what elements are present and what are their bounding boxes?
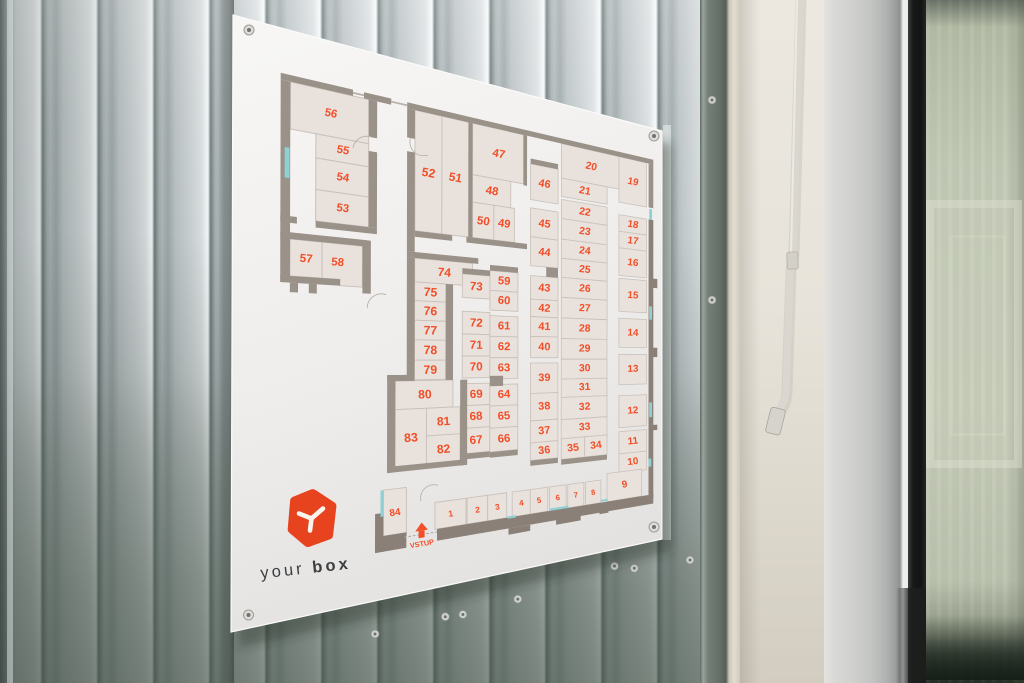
svg-text:40: 40 — [538, 341, 550, 353]
svg-text:14: 14 — [627, 328, 639, 339]
svg-text:72: 72 — [470, 316, 484, 329]
svg-text:51: 51 — [448, 169, 464, 185]
svg-text:55: 55 — [336, 144, 350, 158]
svg-text:83: 83 — [404, 430, 419, 445]
svg-text:25: 25 — [579, 264, 592, 276]
svg-text:39: 39 — [538, 372, 550, 384]
svg-text:60: 60 — [497, 295, 510, 308]
svg-text:41: 41 — [538, 321, 551, 333]
svg-text:64: 64 — [497, 389, 511, 401]
svg-text:47: 47 — [491, 147, 506, 161]
svg-text:32: 32 — [579, 401, 591, 413]
svg-text:10: 10 — [627, 456, 640, 468]
svg-text:63: 63 — [498, 362, 511, 374]
svg-text:37: 37 — [538, 424, 551, 437]
svg-text:18: 18 — [627, 219, 640, 232]
svg-text:27: 27 — [579, 303, 591, 315]
svg-text:66: 66 — [497, 433, 511, 446]
svg-text:58: 58 — [331, 256, 345, 269]
svg-text:50: 50 — [476, 214, 491, 229]
svg-text:48: 48 — [485, 185, 500, 199]
svg-text:36: 36 — [538, 444, 551, 457]
svg-text:53: 53 — [336, 202, 350, 216]
svg-text:65: 65 — [497, 410, 511, 423]
svg-text:24: 24 — [578, 245, 591, 257]
svg-text:17: 17 — [627, 235, 640, 247]
svg-text:35: 35 — [567, 441, 580, 454]
svg-text:34: 34 — [590, 440, 603, 452]
svg-text:46: 46 — [537, 177, 551, 191]
svg-text:68: 68 — [469, 410, 483, 424]
svg-text:62: 62 — [498, 341, 511, 353]
svg-text:43: 43 — [538, 282, 551, 295]
svg-text:42: 42 — [538, 302, 551, 315]
svg-text:74: 74 — [437, 265, 452, 280]
svg-text:33: 33 — [579, 422, 592, 434]
svg-text:13: 13 — [627, 364, 639, 375]
svg-text:79: 79 — [423, 363, 437, 377]
svg-text:76: 76 — [423, 304, 437, 319]
svg-text:75: 75 — [423, 285, 438, 300]
svg-text:67: 67 — [469, 433, 483, 447]
svg-text:44: 44 — [538, 246, 551, 259]
svg-text:49: 49 — [497, 217, 511, 231]
svg-text:78: 78 — [424, 343, 438, 357]
svg-text:73: 73 — [469, 280, 483, 294]
svg-text:31: 31 — [579, 382, 591, 393]
svg-text:77: 77 — [423, 323, 437, 337]
svg-text:15: 15 — [627, 290, 639, 302]
svg-text:84: 84 — [389, 507, 402, 520]
svg-text:59: 59 — [497, 275, 510, 288]
svg-text:21: 21 — [578, 185, 592, 198]
svg-text:69: 69 — [469, 388, 483, 401]
svg-text:26: 26 — [579, 283, 592, 295]
svg-text:12: 12 — [627, 405, 639, 417]
svg-text:22: 22 — [578, 206, 591, 219]
svg-text:29: 29 — [579, 344, 591, 355]
svg-text:45: 45 — [538, 217, 552, 231]
svg-text:28: 28 — [579, 323, 591, 334]
svg-text:30: 30 — [579, 363, 591, 374]
svg-text:56: 56 — [323, 107, 338, 121]
svg-text:57: 57 — [299, 252, 313, 266]
svg-text:52: 52 — [421, 165, 437, 181]
svg-text:11: 11 — [627, 435, 639, 447]
svg-text:61: 61 — [498, 320, 511, 332]
svg-text:71: 71 — [470, 339, 484, 352]
svg-text:16: 16 — [627, 257, 640, 269]
svg-text:82: 82 — [436, 441, 451, 456]
svg-text:54: 54 — [336, 171, 351, 185]
svg-text:80: 80 — [418, 387, 432, 401]
svg-text:23: 23 — [578, 226, 591, 238]
svg-text:81: 81 — [436, 414, 450, 429]
svg-text:38: 38 — [538, 400, 551, 413]
svg-text:70: 70 — [470, 360, 484, 373]
